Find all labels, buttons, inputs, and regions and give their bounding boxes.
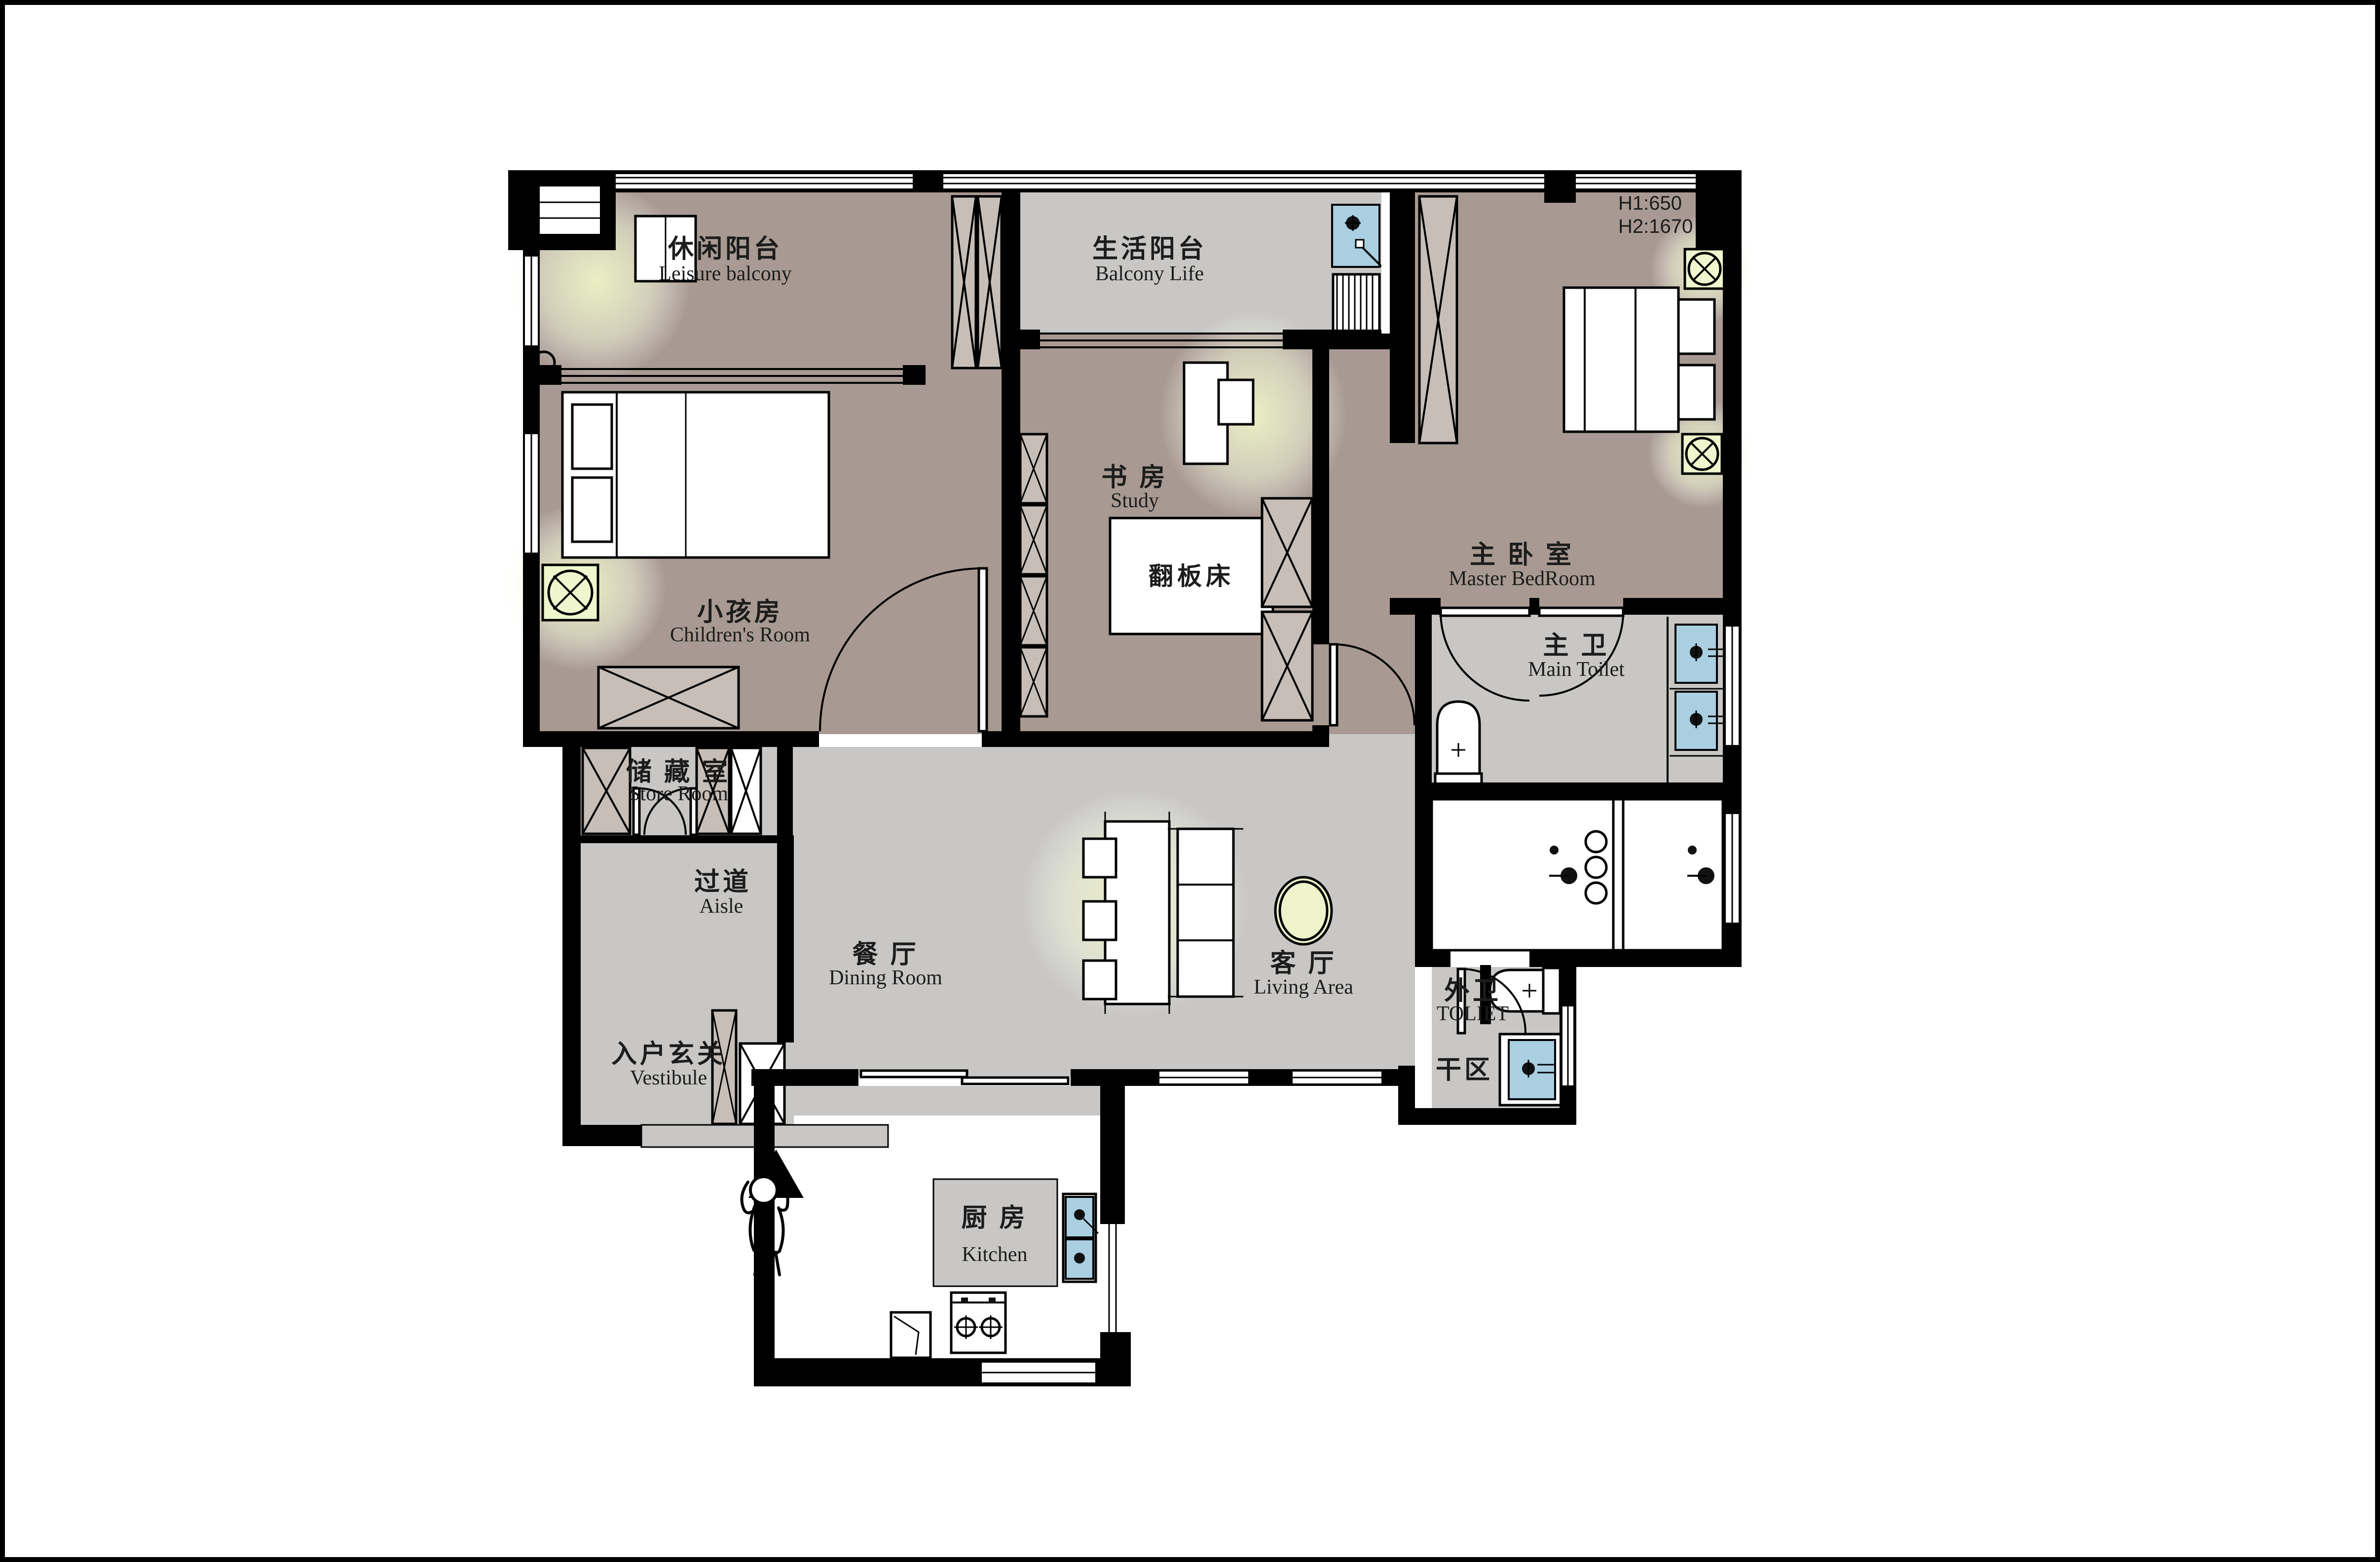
label-outer-toilet-cn: 外卫: [1444, 977, 1501, 1005]
label-children-en: Children's Room: [670, 624, 810, 646]
laundry-sink-icon: [1332, 205, 1381, 267]
label-aisle-cn: 过道: [694, 868, 751, 896]
label-master-cn: 主 卧 室: [1470, 541, 1574, 569]
label-flip-bed: 翻板床: [1149, 562, 1234, 590]
label-vestibule-en: Vestibule: [630, 1067, 707, 1089]
label-aisle-en: Aisle: [700, 895, 744, 918]
coffee-table: [1275, 877, 1332, 944]
label-dry-area: 干区: [1436, 1056, 1493, 1084]
label-balcony-life-en: Balcony Life: [1095, 262, 1204, 285]
bookshelf-column: [1020, 434, 1047, 716]
label-kitchen-cn: 厨 房: [961, 1204, 1028, 1232]
label-store-en: Store Room: [629, 782, 728, 805]
label-leisure-en: Leisure balcony: [659, 262, 791, 285]
fridge-icon: [891, 1312, 930, 1358]
label-leisure-cn: 休闲阳台: [668, 235, 782, 263]
label-h1: H1:650: [1618, 192, 1682, 214]
children-bed: [562, 392, 829, 558]
label-children-cn: 小孩房: [697, 598, 783, 627]
children-cabinet: [598, 667, 739, 728]
ceiling-lamp-icon: [1685, 249, 1724, 289]
floor-plan: 休闲阳台 Leisure balcony 生活阳台 Balcony Life 小…: [0, 0, 2380, 1562]
label-dining-cn: 餐 厅: [852, 940, 919, 969]
dining-chairs: [1083, 839, 1116, 999]
label-master-en: Master BedRoom: [1449, 567, 1596, 590]
kitchen-island: [933, 1179, 1057, 1286]
store-cabinet-left: [583, 748, 630, 834]
toilet-icon: [1435, 702, 1482, 792]
label-main-toilet-cn: 主 卫: [1543, 632, 1609, 660]
floor-vanity: [1432, 799, 1723, 950]
master-closet-icon: [1419, 196, 1457, 443]
label-h2: H2:1670: [1618, 216, 1693, 237]
label-dining-en: Dining Room: [829, 967, 942, 989]
label-living-cn: 客 厅: [1270, 949, 1337, 978]
label-study-cn: 书 房: [1101, 463, 1168, 492]
ceiling-lamp-icon: [543, 565, 598, 620]
dry-area-sink-icon: [1500, 1034, 1564, 1105]
kitchen-sink-icon: [1063, 1194, 1098, 1282]
ceiling-lamp-icon: [1682, 434, 1722, 474]
label-study-en: Study: [1111, 489, 1159, 512]
label-living-en: Living Area: [1254, 976, 1353, 999]
floor-kitchen-strip: [775, 1086, 1100, 1116]
stove-icon: [951, 1293, 1005, 1353]
label-kitchen-en: Kitchen: [962, 1243, 1028, 1266]
label-balcony-life-cn: 生活阳台: [1092, 235, 1207, 263]
label-outer-toilet-en: TOLIET: [1437, 1003, 1509, 1025]
dining-bench: [1168, 829, 1243, 997]
label-main-toilet-en: Main Toilet: [1528, 658, 1625, 681]
label-vestibule-cn: 入户玄关: [611, 1040, 726, 1069]
wardrobe-icon: [952, 196, 1002, 368]
